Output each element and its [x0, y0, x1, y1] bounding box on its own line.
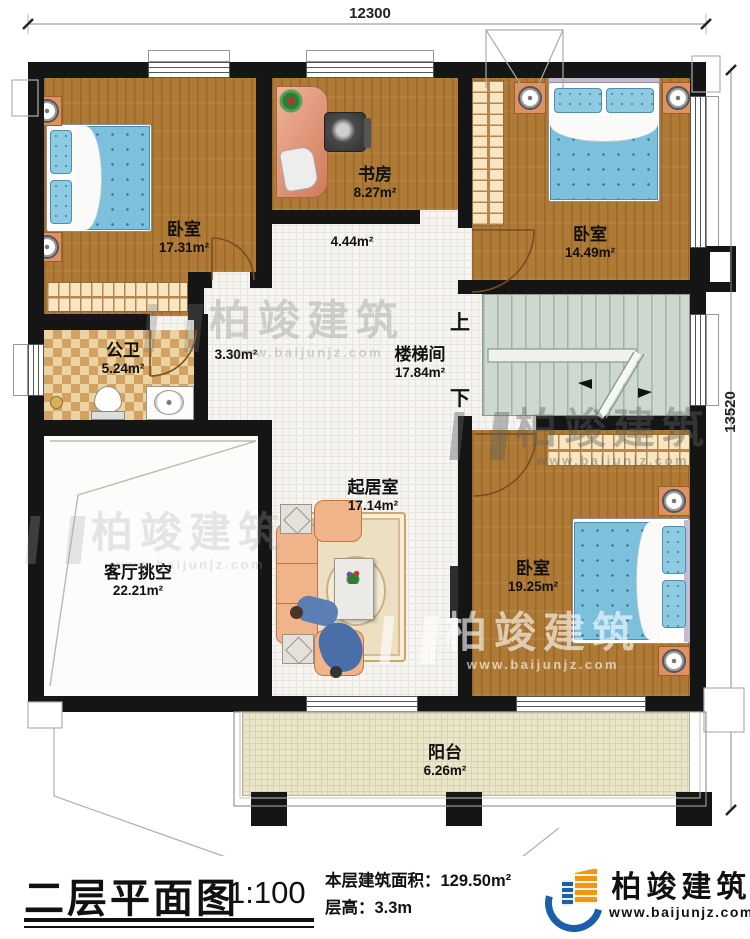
person-head: [330, 666, 342, 678]
wall-bedroom3-west: [458, 430, 472, 696]
room-label-hall: 4.44m²: [312, 234, 392, 251]
logo-building-orange-icon: [575, 868, 597, 904]
sheet-info: 本层建筑面积：129.50m² 层高：3.3m: [325, 868, 511, 922]
room-label-study: 书房 8.27m²: [325, 164, 425, 202]
logo-building-blue-icon: [562, 880, 573, 906]
room-label-balcony: 阳台 6.26m²: [395, 742, 495, 780]
room-area: 17.31m²: [134, 240, 234, 257]
window-stairwell-east: [690, 314, 706, 406]
balcony-column: [446, 792, 482, 826]
wall-bathroom-east: [194, 330, 208, 426]
room-label-bedroom3: 卧室 19.25m²: [483, 558, 583, 596]
flower-vase-icon: [344, 568, 362, 584]
floor-drain: [50, 396, 63, 409]
sheet-scale: 1:100: [228, 875, 306, 911]
room-area: 19.25m²: [483, 579, 583, 596]
side-table: [280, 504, 312, 534]
wall-bedroom1-south: [204, 272, 212, 288]
room-name: 卧室: [134, 219, 234, 240]
room-area: 17.14m²: [323, 498, 423, 515]
room-name: 起居室: [323, 477, 423, 498]
monitor-stand: [364, 118, 371, 148]
room-area: 17.84m²: [370, 365, 470, 382]
toilet-tank: [91, 411, 125, 420]
window-bedroom1-north: [148, 62, 230, 78]
wall-bathroom-north: [194, 314, 208, 330]
room-area: 5.24m²: [73, 361, 173, 378]
wall-bedroom1-south: [250, 272, 272, 288]
room-area: 4.44m²: [312, 234, 392, 251]
wall-stairwell-south: [458, 416, 472, 430]
wall-bedroom1-south-v: [188, 272, 204, 320]
stairwell-floor: [482, 294, 690, 416]
window-sill: [706, 96, 719, 248]
wardrobe-bedroom1: [46, 282, 188, 312]
room-name: 阳台: [395, 742, 495, 763]
room-name: 公卫: [73, 340, 173, 361]
bed-bedroom1-pillow: [50, 180, 72, 224]
company-url: www.baijunjz.com: [609, 904, 750, 920]
window-sill: [306, 50, 434, 62]
room-label-stairwell: 楼梯间 17.84m²: [370, 344, 470, 382]
room-area: 22.21m²: [78, 583, 198, 600]
monitor-study: [324, 112, 366, 152]
wall-stairwell-north: [458, 280, 690, 294]
window-sill: [13, 344, 28, 396]
logo-swoosh-icon: [534, 863, 613, 939]
room-name: 客厅挑空: [78, 562, 198, 583]
window-bedroom2-east: [690, 96, 706, 248]
title-block: 二层平面图 1:100 本层建筑面积：129.50m² 层高：3.3m 柏竣建筑…: [0, 856, 750, 939]
wall-study-bedroom2: [458, 62, 472, 228]
plant-icon: [278, 88, 304, 114]
window-sill: [706, 314, 719, 406]
bed-bedroom3-sheet: [636, 522, 660, 640]
wardrobe-bedroom3: [546, 434, 690, 466]
room-area: 3.30m²: [196, 347, 276, 364]
wardrobe-bedroom2: [472, 80, 504, 226]
chimney-flue: [710, 252, 730, 282]
wall-bathroom-north: [28, 314, 150, 330]
bed-bedroom2-pillow: [606, 88, 654, 113]
floor-height-line: 层高：3.3m: [325, 895, 511, 922]
lamp-icon: [662, 649, 686, 673]
wall-stairwell-south: [536, 416, 690, 430]
wall-void-north: [28, 420, 272, 436]
toilet: [94, 386, 122, 413]
wall-study-south: [272, 210, 420, 224]
bed-bedroom1-pillow: [50, 130, 72, 174]
window-study-north: [306, 62, 434, 78]
room-area: 14.49m²: [540, 245, 640, 262]
side-table: [282, 634, 314, 664]
room-name: 卧室: [540, 224, 640, 245]
balcony-column: [251, 792, 287, 826]
balcony-column: [676, 792, 712, 826]
title-underline: [24, 918, 314, 922]
nightstand: [658, 646, 690, 676]
nightstand: [514, 82, 546, 114]
room-label-bedroom1: 卧室 17.31m²: [134, 219, 234, 257]
room-label-bathroom: 公卫 5.24m²: [73, 340, 173, 378]
sink-basin: [154, 390, 184, 415]
person-head: [290, 606, 303, 619]
company-logo: 柏竣建筑 www.baijunjz.com: [545, 866, 750, 924]
bed-bedroom2-pillow: [554, 88, 602, 113]
company-name: 柏竣建筑: [611, 871, 750, 904]
wall-bedroom1-study: [256, 62, 272, 288]
room-name: 书房: [325, 164, 425, 185]
nightstand: [658, 486, 690, 516]
room-name: 卧室: [483, 558, 583, 579]
window-bedroom3-south: [516, 696, 646, 712]
window-family-south: [306, 696, 418, 712]
title-underline: [24, 926, 314, 928]
room-area: 6.26m²: [395, 763, 495, 780]
room-label-living-void: 客厅挑空 22.21m²: [78, 562, 198, 600]
window-sill: [148, 50, 230, 62]
room-label-bedroom2: 卧室 14.49m²: [540, 224, 640, 262]
room-name: 楼梯间: [370, 344, 470, 365]
stairs-up-label: 上: [450, 306, 470, 335]
lamp-icon: [662, 489, 686, 513]
floor-plan-sheet: 12300 13520 卧室 17.31m² 书房 8.27m² 卧室 14.4…: [0, 0, 750, 939]
company-logo-icon: [545, 866, 601, 924]
room-area: 8.27m²: [325, 185, 425, 202]
sofa-three-seat: [276, 524, 318, 644]
bed-bedroom3-pillow: [662, 580, 686, 628]
window-bathroom-west: [28, 344, 44, 396]
lamp-icon: [666, 86, 690, 110]
floor-area-line: 本层建筑面积：129.50m²: [325, 868, 511, 895]
stairs-down-label: 下: [450, 382, 470, 411]
lamp-icon: [518, 86, 542, 110]
wall-void-east: [258, 436, 272, 696]
sheet-title: 二层平面图: [24, 866, 239, 924]
room-label-family-room: 起居室 17.14m²: [323, 477, 423, 515]
dimension-top: 12300: [330, 5, 410, 22]
dimension-right: 13520: [722, 372, 739, 452]
bed-bedroom3-pillow: [662, 526, 686, 574]
room-label-corridor: 3.30m²: [196, 347, 276, 364]
